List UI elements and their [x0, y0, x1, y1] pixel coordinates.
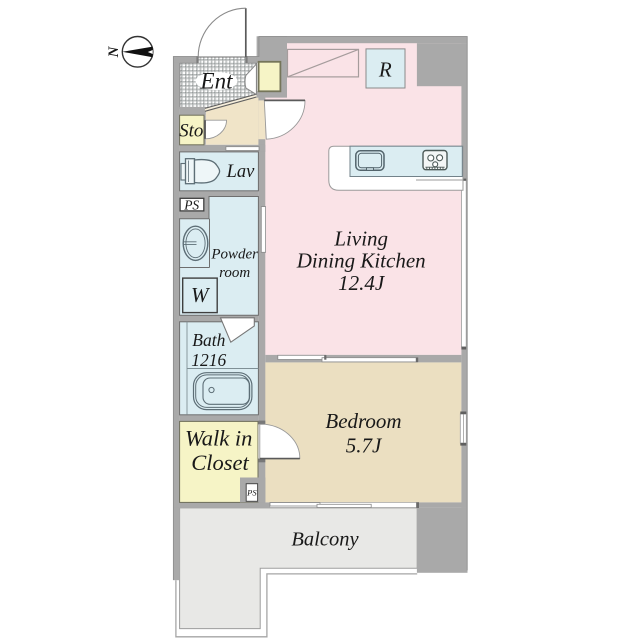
svg-text:W: W: [191, 283, 211, 307]
svg-text:Balcony: Balcony: [291, 528, 359, 550]
svg-text:Living: Living: [333, 227, 388, 251]
svg-text:12.4J: 12.4J: [338, 271, 386, 295]
svg-text:Sto: Sto: [179, 121, 203, 142]
svg-text:Powder: Powder: [210, 247, 258, 263]
svg-text:PS: PS: [246, 488, 257, 498]
svg-text:Bath: Bath: [192, 330, 225, 350]
svg-text:Bedroom: Bedroom: [325, 409, 401, 433]
svg-text:R: R: [378, 58, 392, 82]
svg-text:Ent: Ent: [200, 69, 234, 94]
svg-text:5.7J: 5.7J: [346, 434, 383, 458]
svg-text:Lav: Lav: [226, 162, 256, 182]
svg-text:N: N: [106, 45, 122, 58]
svg-text:Walk in: Walk in: [185, 426, 252, 451]
svg-text:1216: 1216: [191, 350, 226, 370]
svg-text:room: room: [219, 265, 250, 281]
svg-text:Dining Kitchen: Dining Kitchen: [296, 249, 426, 273]
svg-text:Closet: Closet: [191, 450, 249, 475]
svg-text:PS: PS: [183, 197, 199, 212]
